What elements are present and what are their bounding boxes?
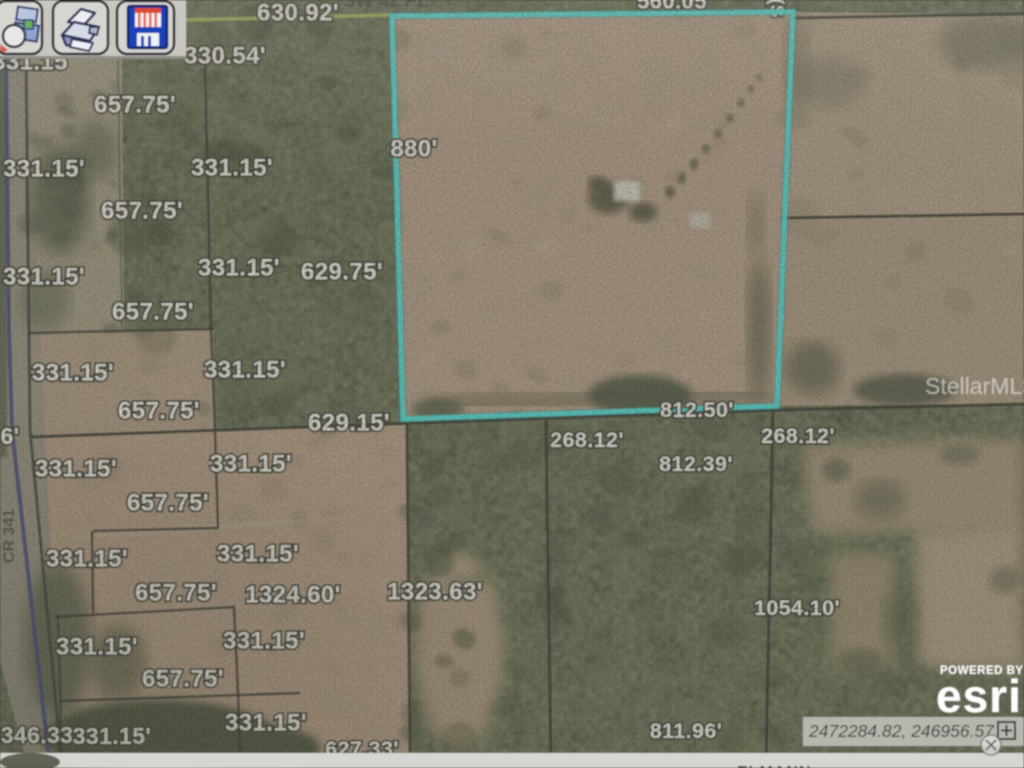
svg-text:StellarMLS: StellarMLS — [925, 373, 1024, 399]
svg-text:ELMANN: ELMANN — [737, 764, 811, 768]
svg-text:2472284.82, 246956.57: 2472284.82, 246956.57 — [808, 721, 995, 741]
svg-text:esri: esri — [936, 670, 1022, 722]
